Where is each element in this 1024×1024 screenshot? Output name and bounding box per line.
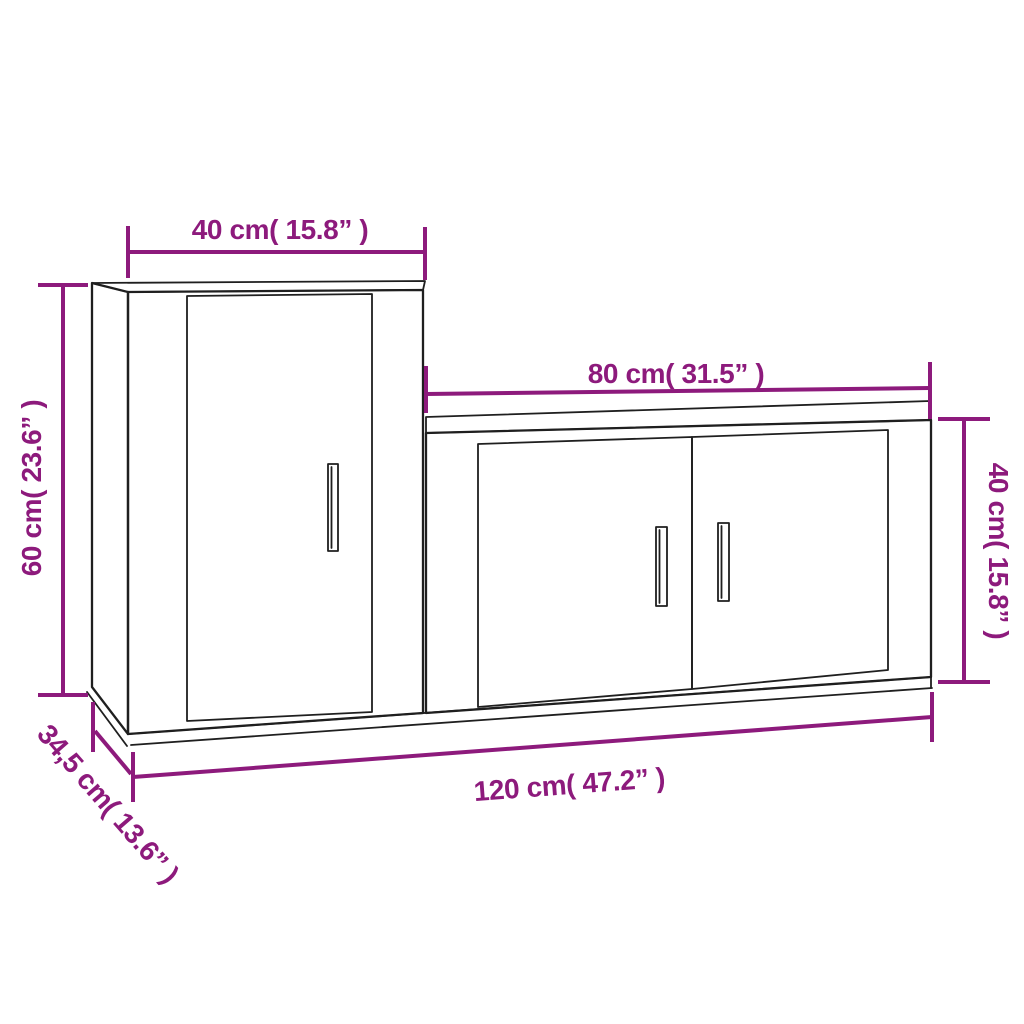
low-cabinet-left-door-handle — [656, 527, 667, 606]
tall-cabinet-door — [187, 294, 372, 721]
tall-cabinet-side-face — [92, 283, 128, 734]
tall-cabinet-width-label: 40 cm( 15.8” ) — [192, 214, 369, 245]
dimension-labels: 40 cm( 15.8” ) 80 cm( 31.5” ) 60 cm( 23.… — [16, 214, 1014, 889]
low-cabinet-front-face — [426, 420, 931, 713]
dimension-lines — [38, 226, 990, 802]
cabinet-line-art — [87, 281, 932, 746]
low-cabinet-height-label: 40 cm( 15.8” ) — [983, 463, 1014, 640]
tall-cabinet-door-handle — [328, 464, 338, 551]
dimension-diagram: 40 cm( 15.8” ) 80 cm( 31.5” ) 60 cm( 23.… — [0, 0, 1024, 1024]
dimension-line — [95, 731, 131, 774]
tall-cabinet — [87, 281, 425, 746]
cabinet-base-bottom-edge — [131, 688, 932, 745]
cabinet-dimension-drawing: 40 cm( 15.8” ) 80 cm( 31.5” ) 60 cm( 23.… — [0, 0, 1024, 1024]
low-cabinet-top-face — [426, 401, 931, 433]
low-cabinet — [426, 401, 931, 713]
tall-cabinet-height-label: 60 cm( 23.6” ) — [16, 400, 47, 577]
low-cabinet-width-label: 80 cm( 31.5” ) — [588, 358, 765, 389]
tall-cabinet-front-face — [128, 290, 423, 734]
low-cabinet-right-door-handle — [718, 523, 729, 601]
total-width-label: 120 cm( 47.2” ) — [473, 762, 666, 807]
low-cabinet-height-dimension — [938, 419, 990, 682]
